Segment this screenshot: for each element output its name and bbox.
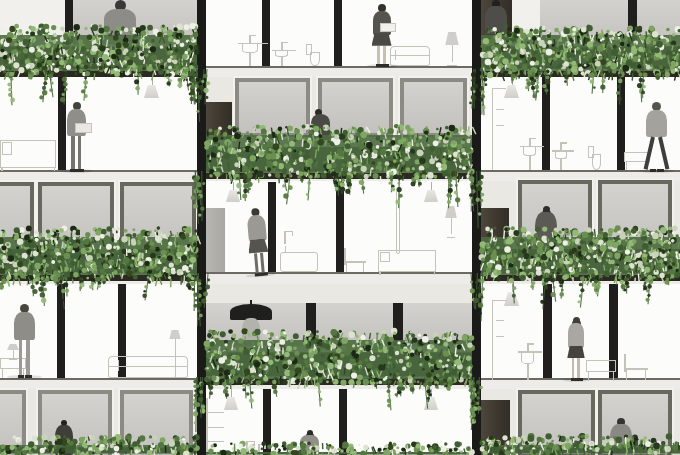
window-mullion	[393, 303, 403, 346]
bath-rail-a	[496, 320, 504, 321]
furniture-bench	[586, 360, 616, 381]
bed-leg-b	[54, 168, 56, 171]
furniture-sink	[238, 26, 268, 66]
sink-faucet-h	[527, 343, 534, 345]
window-mullion	[628, 0, 637, 44]
balcony-window	[598, 180, 672, 258]
table-lamp-stem	[452, 45, 453, 62]
balcony-window	[38, 390, 112, 455]
person-torso	[14, 312, 35, 340]
furniture-sink	[520, 128, 544, 170]
tub-faucet	[285, 246, 287, 253]
person-man-in-doorway-top-right	[483, 0, 509, 34]
person-man-walking	[642, 102, 671, 172]
pendant-lamp-shade	[424, 190, 438, 202]
table-lamp-shade	[445, 206, 457, 218]
mirror-frame	[396, 190, 400, 254]
chair-leg-b	[645, 368, 646, 380]
balcony-window	[120, 390, 193, 455]
faucet-drop	[254, 441, 256, 446]
pendant-wire	[431, 182, 432, 190]
faucet-riser	[284, 231, 286, 245]
balcony-window	[0, 390, 26, 455]
person-torso	[242, 318, 260, 346]
person-torso	[646, 110, 667, 137]
sink-basin	[555, 152, 567, 159]
furniture-toilet	[306, 44, 320, 66]
furniture-bathcol	[492, 88, 506, 170]
person-leg-right	[26, 340, 30, 376]
person-leg-left	[643, 136, 654, 169]
table-lamp-base	[447, 65, 457, 67]
person-leg-right	[260, 252, 265, 274]
person-torso	[104, 9, 136, 36]
furniture-tlamp	[444, 206, 458, 238]
umbrella-tip	[250, 300, 252, 305]
bench-leg-a	[2, 369, 3, 378]
person-shoe-right	[25, 375, 32, 378]
sofa-arm-line	[118, 360, 119, 371]
bench-top	[586, 360, 616, 372]
person-shoe-left	[18, 375, 25, 378]
balcony-window	[120, 182, 196, 258]
shelf-board-1	[206, 427, 224, 428]
shelf-board-2	[206, 441, 224, 442]
carried-box	[75, 123, 92, 133]
balcony-window	[235, 78, 310, 137]
pendant-wire	[152, 77, 153, 85]
table-lamp-base	[447, 237, 455, 239]
person-skirt	[372, 33, 392, 46]
frosted-glass-pane	[637, 0, 680, 44]
person-torso	[610, 424, 633, 455]
bed-leg-a	[1, 168, 3, 171]
sink-pedestal	[529, 156, 531, 170]
furniture-sink	[272, 38, 296, 66]
bed-leg-b	[434, 272, 436, 275]
pendant-lamp-shade	[504, 292, 519, 306]
furniture-pendant	[226, 182, 240, 202]
person-shoe-right	[77, 169, 84, 172]
furniture-pendant	[424, 182, 438, 202]
sink-faucet-h	[529, 138, 536, 140]
furniture-tub	[280, 246, 318, 272]
sofa-seat-line	[109, 366, 187, 367]
tub-body	[438, 448, 460, 455]
furniture-faucet	[244, 436, 256, 455]
person-torso	[485, 6, 508, 34]
furniture-chair	[624, 354, 648, 380]
pendant-lamp-shade	[424, 397, 438, 410]
person-woman-bottom-middle	[299, 430, 320, 455]
person-leg-right	[383, 46, 386, 65]
person-shoe-right	[657, 169, 664, 172]
bed-pillow	[380, 252, 390, 262]
person-shoe-left	[376, 64, 382, 67]
person-skirt	[247, 238, 268, 253]
pendant-wire	[231, 389, 232, 397]
furniture-sink	[518, 330, 542, 380]
sink-basin	[242, 44, 259, 53]
balcony-window	[0, 182, 34, 258]
dark-door-panel	[481, 208, 509, 268]
faucet-riser	[258, 444, 260, 455]
bed-leg-a	[379, 272, 381, 275]
floor-lamp-shade	[169, 330, 180, 339]
balcony-window	[38, 182, 114, 258]
floor-slab	[0, 272, 680, 284]
bench-leg-b	[613, 372, 614, 381]
sink-basin	[523, 147, 536, 156]
person-man-bottom-right	[608, 418, 634, 455]
person-man-at-window-top-left	[102, 0, 138, 36]
toilet-bowl	[310, 52, 320, 66]
person-shoe-right	[382, 64, 388, 67]
person-leg-right	[658, 136, 669, 169]
furniture-bed	[0, 140, 56, 168]
furniture-sofa	[390, 46, 430, 66]
person-leg-left	[19, 340, 23, 376]
pendant-lamp-shade	[144, 85, 159, 98]
window-mullion	[543, 284, 552, 378]
person-leg-left	[71, 136, 75, 170]
person-leg-left	[253, 253, 258, 275]
window-mullion	[334, 0, 342, 66]
person-shoe-left	[254, 273, 260, 277]
furniture-tub	[438, 446, 460, 455]
pendant-wire	[233, 182, 234, 190]
pendant-wire	[431, 389, 432, 397]
faucet-drop	[264, 444, 266, 449]
person-torso	[55, 425, 73, 455]
furniture-pendant	[504, 77, 519, 98]
chair-leg-b	[363, 261, 364, 272]
toilet-bowl	[592, 154, 601, 170]
bath-rail-b	[496, 125, 504, 126]
bath-rail-b	[496, 336, 504, 337]
person-torso	[568, 323, 584, 347]
furniture-pendant	[504, 284, 519, 306]
person-woman-carrying-box	[369, 4, 394, 67]
furniture-shelf	[206, 398, 224, 455]
carried-box	[380, 23, 396, 32]
pendant-wire	[512, 284, 513, 292]
furniture-toilet	[588, 146, 601, 170]
sink-pedestal	[560, 159, 562, 170]
person-woman-standing-right	[565, 317, 587, 381]
frosted-glass-pane	[540, 0, 628, 44]
pendant-wire	[512, 77, 513, 85]
bath-column	[492, 88, 506, 170]
sink-basin	[521, 353, 534, 364]
person-woman-on-balcony	[534, 206, 558, 248]
person-leg-left	[572, 358, 575, 379]
wardrobe-body	[206, 208, 225, 272]
sink-faucet-h	[281, 42, 288, 44]
person-man-holding-box	[63, 102, 90, 172]
floor-slab	[0, 66, 680, 77]
person-shoe-right	[577, 378, 583, 381]
furniture-mirror	[396, 190, 400, 254]
person-leg-right	[78, 136, 82, 170]
furniture-pendant	[224, 389, 238, 410]
chair-leg-a	[626, 368, 627, 380]
furniture-pendant	[144, 77, 159, 98]
person-torso	[246, 215, 266, 242]
bed-pillow	[2, 142, 12, 155]
sofa-seat-line	[391, 55, 429, 56]
pendant-lamp-shade	[504, 85, 519, 98]
furniture-bathcol	[492, 300, 506, 380]
sink-faucet-h	[249, 35, 256, 37]
bath-rail-a	[496, 109, 504, 110]
furniture-tlamp	[444, 32, 460, 66]
tub-body	[280, 252, 318, 272]
person-torso	[300, 435, 318, 455]
person-shoe-left	[70, 169, 77, 172]
bath-column	[492, 300, 506, 380]
table-lamp-shade	[445, 32, 458, 45]
chair-leg-a	[346, 261, 347, 272]
bench-leg-a	[626, 162, 627, 170]
person-shoe-right	[261, 272, 267, 276]
person-man-hands-in-pockets	[10, 304, 39, 378]
sink-pedestal	[281, 57, 283, 66]
person-leg-right	[577, 358, 580, 379]
person-leg-left	[377, 46, 380, 65]
sink-faucet-h	[560, 142, 567, 144]
balcony-window	[400, 78, 467, 137]
furniture-faucet	[282, 226, 294, 244]
dark-door-panel	[481, 400, 510, 455]
person-skirt	[567, 346, 585, 359]
window-mullion	[336, 182, 344, 272]
facade-column-divider	[472, 0, 481, 455]
facade-elevation-canvas	[0, 0, 680, 455]
shelf-board-0	[206, 412, 224, 413]
furniture-pendant	[424, 389, 438, 410]
person-torso	[535, 212, 556, 248]
window-mullion	[65, 0, 73, 44]
table-lamp-stem	[451, 218, 452, 234]
window-mullion	[306, 303, 316, 346]
facade-column-divider	[197, 0, 206, 455]
pendant-lamp-shade	[226, 190, 240, 202]
sink-pedestal	[249, 53, 251, 66]
furniture-faucet	[256, 440, 266, 455]
person-shoe-left	[650, 169, 657, 172]
furniture-bed	[378, 250, 436, 272]
window-mullion	[339, 389, 347, 455]
furniture-sofa	[108, 356, 188, 378]
furniture-chair	[344, 248, 366, 272]
faucet-drop	[292, 231, 294, 236]
faucet-riser	[246, 441, 248, 455]
furniture-wardrobe	[206, 208, 225, 272]
pendant-lamp-shade	[224, 397, 238, 410]
sofa-arm-line	[395, 50, 396, 60]
balcony-window	[518, 390, 595, 455]
dark-door-panel	[206, 102, 232, 140]
furniture-sink	[552, 136, 574, 170]
sink-pedestal	[527, 364, 529, 381]
person-person-with-umbrella	[230, 304, 272, 346]
window-mullion	[57, 284, 65, 378]
person-legs	[309, 130, 331, 140]
person-person-seated-balcony	[309, 109, 332, 140]
person-woman-dark-coat	[54, 420, 74, 455]
tub-faucet	[441, 446, 443, 448]
